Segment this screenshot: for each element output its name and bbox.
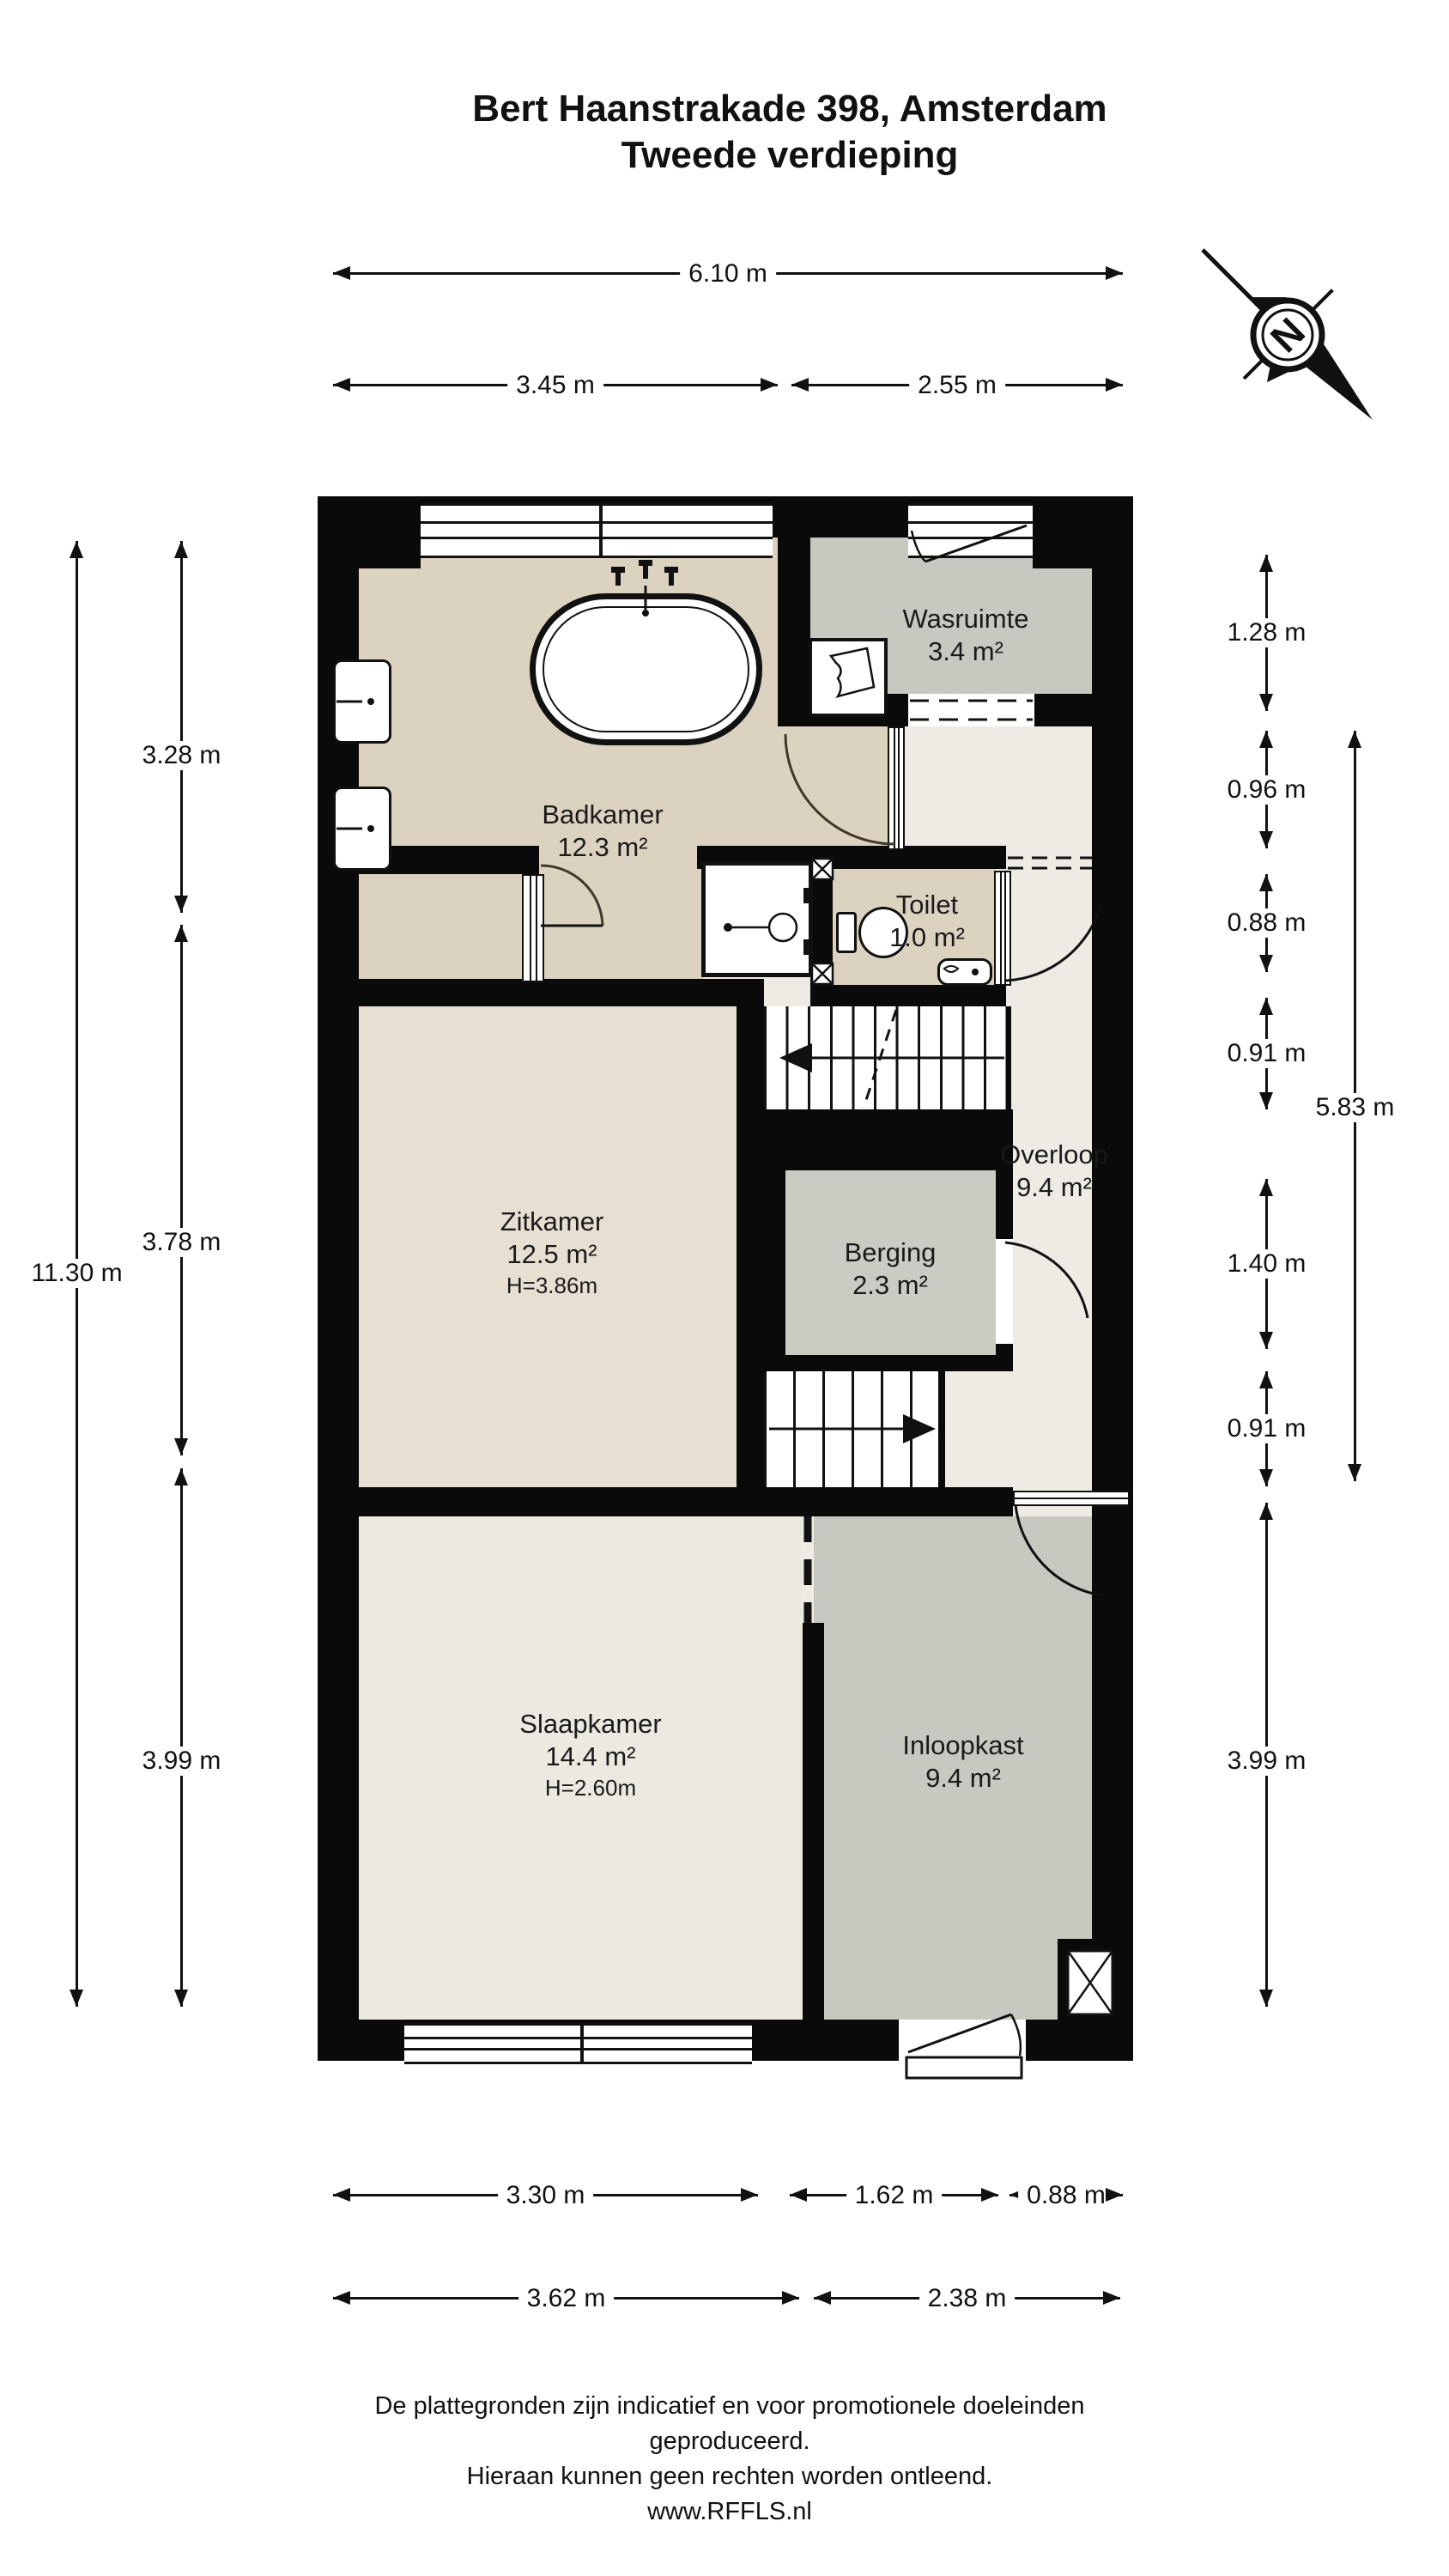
dimension-label: 1.40 m	[1219, 1249, 1315, 1279]
door-arc	[785, 734, 894, 844]
room-name: Overloop	[1000, 1139, 1108, 1171]
dimension-label: 3.78 m	[134, 1228, 230, 1257]
room-name: Badkamer	[542, 799, 663, 831]
disclaimer-line1: De plattegronden zijn indicatief en voor…	[295, 2389, 1164, 2459]
room-area: 14.4 m²	[519, 1741, 661, 1773]
dimension-right-2: 0.96 m	[1265, 731, 1268, 848]
room-label-zitkamer: Zitkamer 12.5 m² H=3.86m	[500, 1206, 604, 1300]
dimension-right-4: 0.91 m	[1265, 998, 1268, 1109]
door-leaf	[908, 2014, 1011, 2052]
dimension-label: 3.99 m	[134, 1747, 230, 1776]
dimension-bottom-1a: 3.30 m	[333, 2194, 758, 2196]
dimension-label: 3.99 m	[1219, 1747, 1315, 1776]
dimension-label: 0.88 m	[1219, 908, 1315, 938]
room-area: 9.4 m²	[902, 1762, 1023, 1795]
room-area: 9.4 m²	[1000, 1171, 1108, 1204]
dimension-top-full: 6.10 m	[333, 272, 1123, 275]
dimension-top-right: 2.55 m	[791, 384, 1123, 386]
dimension-label: 5.83 m	[1307, 1093, 1404, 1122]
dimension-label: 3.28 m	[134, 741, 230, 770]
dimension-left-1: 3.28 m	[180, 541, 183, 913]
room-name: Wasruimte	[903, 603, 1029, 635]
door-arc	[1006, 903, 1101, 981]
door-leaf	[906, 2057, 1022, 2078]
vent-box-icon	[812, 859, 833, 879]
room-label-inloopkast: Inloopkast 9.4 m²	[902, 1729, 1023, 1795]
dimension-label: 0.88 m	[1018, 2181, 1114, 2210]
dimension-bottom-1b: 1.62 m	[790, 2194, 998, 2196]
dimension-label: 3.30 m	[498, 2181, 594, 2210]
dimension-top-left: 3.45 m	[333, 384, 778, 386]
dimension-right-6: 0.91 m	[1265, 1371, 1268, 1486]
website-url: www.RFFLS.nl	[295, 2494, 1164, 2530]
dimension-label: 0.91 m	[1219, 1414, 1315, 1443]
stairs-arrow-icon	[779, 1043, 812, 1072]
door-leaf	[925, 526, 1027, 562]
room-label-toilet: Toilet 1.0 m²	[889, 889, 965, 954]
room-height: H=3.86m	[500, 1271, 604, 1300]
room-area: 12.3 m²	[542, 831, 663, 864]
room-label-badkamer: Badkamer 12.3 m²	[542, 799, 663, 864]
dimension-bottom-2b: 2.38 m	[814, 2297, 1120, 2300]
faucet-icon	[611, 560, 678, 617]
dimension-right-5: 1.40 m	[1265, 1179, 1268, 1349]
dimension-right-1: 1.28 m	[1265, 555, 1268, 711]
dimension-label: 2.55 m	[909, 371, 1005, 400]
room-area: 3.4 m²	[903, 635, 1029, 668]
door-arc	[541, 866, 603, 926]
room-area: 12.5 m²	[500, 1238, 604, 1271]
disclaimer-line2: Hieraan kunnen geen rechten worden ontle…	[295, 2459, 1164, 2494]
dimension-left-3: 3.99 m	[180, 1468, 183, 2007]
washing-machine-symbol	[831, 648, 874, 696]
floorplan-page: Bert Haanstrakade 398, Amsterdam Tweede …	[0, 0, 1449, 2576]
room-name: Toilet	[889, 889, 965, 921]
dimension-label: 1.62 m	[846, 2181, 943, 2210]
door-arc	[912, 531, 925, 562]
dimension-bottom-2a: 3.62 m	[333, 2297, 799, 2300]
sink-faucet-icon	[336, 698, 374, 832]
door-arc	[1005, 1242, 1088, 1318]
plan-detail-overlay	[0, 0, 1449, 2576]
vent-box-icon	[812, 963, 833, 984]
room-name: Berging	[845, 1236, 937, 1269]
dimension-label: 3.62 m	[518, 2284, 615, 2313]
door-arc	[1011, 2014, 1021, 2056]
disclaimer: De plattegronden zijn indicatief en voor…	[295, 2389, 1164, 2530]
dimension-label: 11.30 m	[22, 1259, 130, 1288]
dimension-label: 3.45 m	[507, 371, 603, 400]
dimension-label: 6.10 m	[680, 259, 776, 289]
dimension-label: 0.96 m	[1219, 775, 1315, 805]
room-label-slaapkamer: Slaapkamer 14.4 m² H=2.60m	[519, 1708, 661, 1802]
room-name: Inloopkast	[902, 1729, 1023, 1762]
door-arc	[1016, 1504, 1102, 1595]
room-area: 2.3 m²	[845, 1269, 937, 1302]
dimension-right-7: 3.99 m	[1265, 1503, 1268, 2007]
dimension-left-2: 3.78 m	[180, 925, 183, 1455]
room-label-overloop: Overloop 9.4 m²	[1000, 1139, 1108, 1204]
dimension-label: 2.38 m	[919, 2284, 1016, 2313]
dimension-bottom-1c: 0.88 m	[1009, 2194, 1123, 2196]
dimension-label: 0.91 m	[1219, 1039, 1315, 1068]
room-label-berging: Berging 2.3 m²	[845, 1236, 937, 1302]
room-name: Zitkamer	[500, 1206, 604, 1238]
toilet-accessory	[944, 966, 979, 975]
room-area: 1.0 m²	[889, 921, 965, 954]
shaft-x-icon	[1068, 1951, 1113, 2014]
dimension-right-3: 0.88 m	[1265, 874, 1268, 972]
stairs-arrow-icon	[903, 1414, 936, 1443]
room-height: H=2.60m	[519, 1773, 661, 1802]
shower-head-icon	[724, 888, 813, 955]
dimension-left-total: 11.30 m	[76, 541, 78, 2007]
dimension-right-span: 5.83 m	[1354, 731, 1356, 1481]
room-name: Slaapkamer	[519, 1708, 661, 1741]
room-label-wasruimte: Wasruimte 3.4 m²	[903, 603, 1029, 668]
dimension-label: 1.28 m	[1219, 618, 1315, 647]
